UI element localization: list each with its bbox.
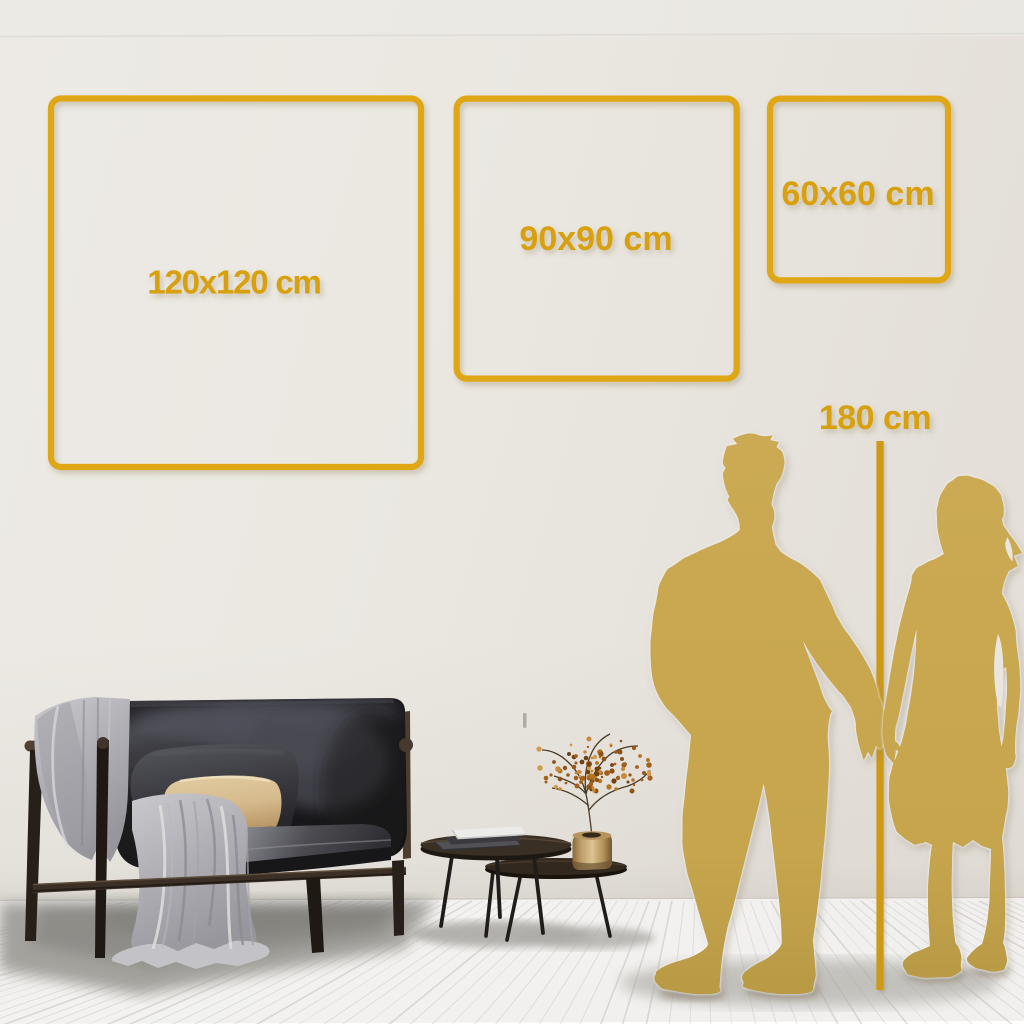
svg-text:90x90 cm: 90x90 cm: [519, 220, 672, 258]
svg-text:60x60 cm: 60x60 cm: [781, 175, 934, 213]
svg-text:120x120 cm: 120x120 cm: [147, 264, 320, 301]
svg-text:180 cm: 180 cm: [819, 399, 931, 437]
